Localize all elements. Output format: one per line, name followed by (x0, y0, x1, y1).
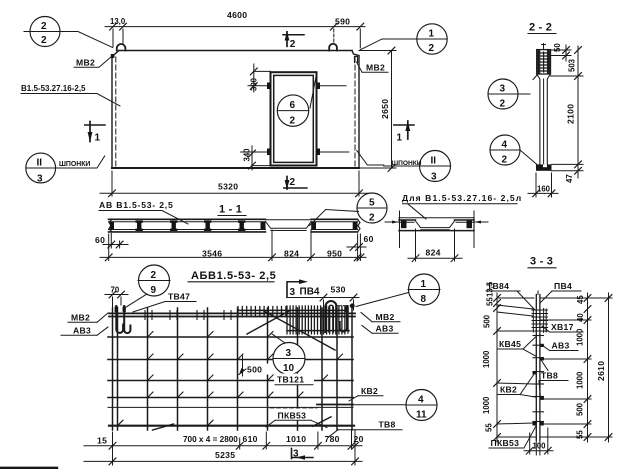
svg-text:5235: 5235 (215, 450, 235, 460)
svg-text:300: 300 (250, 77, 259, 91)
svg-text:ТВ121: ТВ121 (277, 375, 304, 385)
svg-text:3546: 3546 (202, 248, 222, 258)
svg-text:4: 4 (502, 140, 508, 151)
svg-text:КВ2: КВ2 (361, 386, 378, 396)
svg-text:10: 10 (283, 363, 295, 374)
svg-text:55: 55 (486, 297, 495, 306)
svg-text:АВ В1.5-53- 2,5: АВ В1.5-53- 2,5 (99, 200, 174, 210)
svg-text:530: 530 (331, 285, 346, 295)
svg-text:3: 3 (431, 172, 437, 183)
svg-text:2: 2 (500, 99, 506, 110)
svg-text:II: II (37, 158, 43, 169)
svg-text:1000: 1000 (576, 328, 585, 346)
svg-text:3: 3 (290, 287, 296, 298)
svg-text:МВ2: МВ2 (71, 313, 90, 323)
svg-text:1: 1 (95, 133, 101, 144)
svg-text:824: 824 (426, 248, 441, 258)
svg-text:2: 2 (41, 21, 47, 32)
svg-text:1: 1 (429, 29, 435, 40)
svg-text:ПВ4: ПВ4 (554, 281, 572, 291)
svg-text:2: 2 (429, 43, 435, 54)
svg-text:55: 55 (576, 430, 585, 439)
svg-text:700 х 4 = 2800: 700 х 4 = 2800 (183, 435, 238, 444)
svg-text:4600: 4600 (227, 10, 247, 20)
svg-text:11: 11 (416, 410, 427, 421)
svg-text:ПКВ53: ПКВ53 (278, 411, 307, 421)
svg-text:ШПОНКИ: ШПОНКИ (392, 160, 422, 167)
svg-text:ШПОНКИ: ШПОНКИ (59, 161, 90, 168)
svg-text:2: 2 (290, 39, 296, 50)
svg-text:100: 100 (533, 442, 547, 451)
svg-text:3: 3 (37, 174, 43, 185)
svg-text:950: 950 (327, 249, 342, 259)
svg-text:9: 9 (151, 285, 157, 296)
svg-text:ТВ8: ТВ8 (379, 420, 396, 430)
svg-text:II: II (431, 156, 437, 167)
svg-text:МВ2: МВ2 (366, 63, 385, 73)
svg-text:60: 60 (95, 235, 105, 245)
svg-text:3: 3 (500, 84, 506, 95)
svg-text:1: 1 (421, 279, 427, 290)
svg-text:1000: 1000 (482, 350, 491, 368)
svg-text:АБВ1.5-53- 2,5: АБВ1.5-53- 2,5 (191, 270, 276, 282)
svg-text:АВ3: АВ3 (73, 326, 91, 336)
svg-text:В1.5-53.27.16-2,5: В1.5-53.27.16-2,5 (21, 84, 86, 93)
svg-text:АВ3: АВ3 (552, 341, 570, 351)
svg-text:2: 2 (369, 213, 375, 224)
svg-text:4: 4 (418, 395, 424, 406)
svg-text:2100: 2100 (566, 104, 576, 124)
svg-text:500: 500 (247, 365, 262, 375)
svg-text:8: 8 (421, 294, 427, 305)
svg-text:КВ2: КВ2 (500, 385, 517, 395)
svg-text:2: 2 (290, 177, 296, 188)
svg-text:МВ2: МВ2 (76, 58, 95, 68)
svg-text:45: 45 (576, 295, 585, 304)
svg-text:3 - 3: 3 - 3 (530, 256, 553, 268)
svg-text:2: 2 (290, 116, 296, 127)
svg-text:780: 780 (325, 434, 340, 444)
svg-text:500: 500 (576, 402, 585, 416)
svg-text:2 - 2: 2 - 2 (529, 22, 552, 34)
svg-text:60: 60 (364, 234, 374, 244)
svg-text:340: 340 (243, 148, 252, 162)
svg-text:1000: 1000 (482, 396, 491, 414)
svg-text:6: 6 (290, 100, 296, 111)
svg-text:160: 160 (537, 185, 551, 194)
svg-text:500: 500 (483, 314, 492, 328)
svg-text:ПВ4: ПВ4 (300, 287, 320, 298)
svg-text:47: 47 (565, 174, 574, 183)
svg-text:55: 55 (485, 423, 494, 432)
svg-text:1 - 1: 1 - 1 (219, 204, 242, 216)
svg-text:3: 3 (286, 348, 292, 359)
svg-text:2610: 2610 (596, 361, 606, 381)
svg-text:2: 2 (502, 155, 508, 166)
svg-text:АВ3: АВ3 (376, 324, 394, 334)
svg-text:5: 5 (369, 198, 375, 209)
svg-text:ХВ17: ХВ17 (551, 322, 574, 332)
svg-text:610: 610 (243, 434, 258, 444)
svg-text:2650: 2650 (380, 99, 390, 119)
svg-text:503: 503 (568, 58, 577, 72)
svg-text:1000: 1000 (576, 371, 585, 389)
svg-text:13,0: 13,0 (110, 17, 126, 26)
svg-text:КВ45: КВ45 (499, 339, 521, 349)
svg-text:824: 824 (284, 249, 299, 259)
svg-text:ТВ8: ТВ8 (541, 371, 558, 381)
svg-text:70: 70 (111, 286, 120, 295)
svg-text:1: 1 (397, 133, 403, 144)
svg-text:ТВ47: ТВ47 (168, 292, 190, 302)
svg-text:13,5: 13,5 (486, 281, 495, 297)
svg-text:2: 2 (151, 270, 157, 281)
svg-text:2: 2 (41, 35, 47, 46)
svg-text:50: 50 (553, 43, 562, 52)
svg-text:МВ2: МВ2 (376, 312, 395, 322)
svg-text:15: 15 (97, 436, 107, 446)
svg-text:1010: 1010 (286, 434, 306, 444)
svg-text:20: 20 (354, 434, 364, 444)
svg-text:3: 3 (293, 449, 299, 460)
svg-text:5320: 5320 (218, 182, 238, 192)
svg-text:40: 40 (576, 313, 585, 322)
svg-text:590: 590 (335, 17, 350, 27)
svg-text:Для В1.5-53.27.16- 2,5л: Для В1.5-53.27.16- 2,5л (402, 193, 522, 203)
